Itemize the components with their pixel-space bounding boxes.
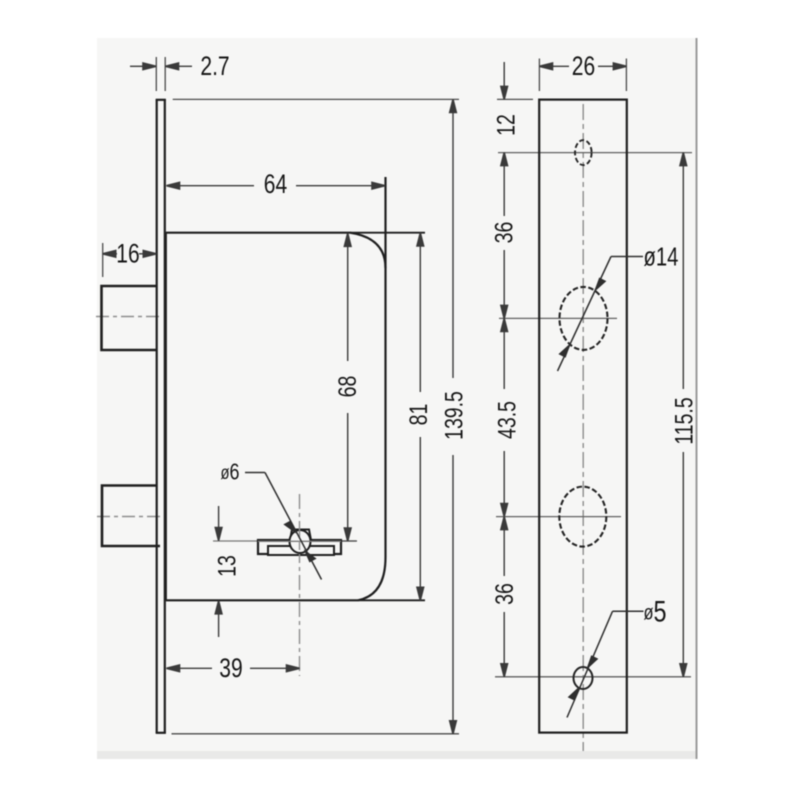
svg-text:36: 36 — [490, 222, 518, 244]
svg-text:16: 16 — [116, 239, 139, 269]
svg-text:ø6: ø6 — [220, 460, 239, 486]
svg-text:ø5: ø5 — [643, 595, 666, 628]
svg-text:43.5: 43.5 — [493, 401, 521, 439]
svg-text:26: 26 — [572, 51, 595, 81]
svg-text:81: 81 — [405, 404, 433, 426]
svg-text:12: 12 — [492, 114, 520, 136]
svg-text:36: 36 — [491, 583, 519, 605]
svg-text:39: 39 — [219, 653, 242, 683]
svg-text:115.5: 115.5 — [670, 397, 698, 444]
svg-text:2.7: 2.7 — [200, 51, 229, 81]
svg-text:139.5: 139.5 — [440, 391, 468, 440]
svg-text:64: 64 — [264, 169, 287, 199]
svg-text:ø14: ø14 — [644, 242, 679, 271]
svg-text:68: 68 — [334, 376, 362, 398]
svg-text:13: 13 — [213, 555, 241, 577]
